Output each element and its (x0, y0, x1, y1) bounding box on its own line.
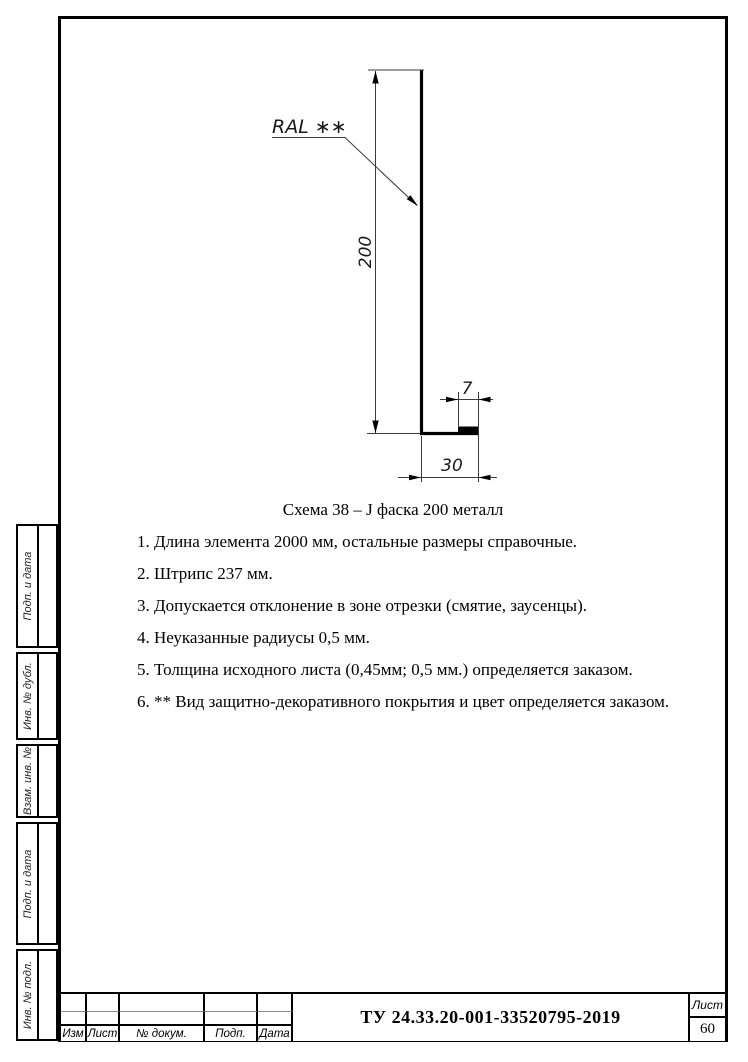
notes-list: 1. Длина элемента 2000 мм, остальные раз… (137, 533, 712, 725)
column-header-podp: Подп. (205, 1026, 258, 1041)
note-3: 3. Допускается отклонение в зоне отрезки… (137, 597, 712, 615)
stamp-label: Инв. № дубл. (22, 662, 34, 730)
stamp-label-cell: Подп. и дата (18, 824, 39, 943)
stamp-blank-cell (39, 824, 56, 943)
note-2: 2. Штрипс 237 мм. (137, 565, 712, 583)
revision-cell (120, 994, 205, 1012)
leader-line (272, 138, 417, 206)
spec-sheet-page: RAL ∗∗ 200 7 30 Схема 38 – J фаска 200 м… (0, 0, 748, 1062)
revision-cell (87, 1012, 120, 1026)
note-6: 6. ** Вид защитно-декоративного покрытия… (137, 693, 712, 711)
column-header-list: Лист (87, 1026, 120, 1041)
figure-caption: Схема 38 – J фаска 200 металл (58, 500, 728, 520)
note-1: 1. Длина элемента 2000 мм, остальные раз… (137, 533, 712, 551)
stamp-label-cell: Инв. № подл. (18, 951, 39, 1039)
dim-height-label: 200 (356, 236, 376, 268)
stamp-label-cell: Подп. и дата (18, 526, 39, 646)
column-header-data: Дата (258, 1026, 293, 1041)
title-block: Изм Лист № докум. Подп. Дата ТУ 24.33.20… (61, 992, 725, 1041)
document-number: ТУ 24.33.20-001-33520795-2019 (293, 994, 688, 1041)
column-header-dokum: № докум. (120, 1026, 205, 1041)
stamp-label-cell: Инв. № дубл. (18, 654, 39, 738)
revision-cell (258, 1012, 293, 1026)
stamp-box-podp-data-2: Подп. и дата (16, 822, 58, 945)
revision-cell (205, 994, 258, 1012)
revision-table: Изм Лист № докум. Подп. Дата (61, 994, 293, 1041)
stamp-label-cell: Взам. инв. № (18, 746, 39, 816)
sheet-cell: Лист 60 (688, 994, 725, 1041)
sheet-label: Лист (690, 994, 725, 1018)
stamp-blank-cell (39, 526, 56, 646)
revision-cell (205, 1012, 258, 1026)
coating-label: RAL ∗∗ (272, 116, 347, 138)
stamp-box-inv-podl: Инв. № подл. (16, 949, 58, 1041)
stamp-label: Инв. № подл. (22, 961, 34, 1029)
column-header-izm: Изм (61, 1026, 87, 1041)
stamp-box-vzam-inv: Взам. инв. № (16, 744, 58, 818)
revision-cell (87, 994, 120, 1012)
dim-hem-label: 7 (462, 379, 473, 399)
stamp-box-inv-dubl: Инв. № дубл. (16, 652, 58, 740)
revision-cell (61, 1012, 87, 1026)
stamp-label: Подп. и дата (22, 552, 34, 621)
note-4: 4. Неуказанные радиусы 0,5 мм. (137, 629, 712, 647)
revision-cell (120, 1012, 205, 1026)
revision-cell (61, 994, 87, 1012)
revision-cell (258, 994, 293, 1012)
stamp-label: Взам. инв. № (22, 747, 34, 815)
stamp-blank-cell (39, 654, 56, 738)
sheet-number: 60 (690, 1018, 725, 1041)
profile-schematic: RAL ∗∗ 200 7 30 (240, 50, 520, 500)
note-5: 5. Толщина исходного листа (0,45мм; 0,5 … (137, 661, 712, 679)
profile-hem (458, 427, 478, 433)
stamp-label: Подп. и дата (22, 849, 34, 918)
dim-base-label: 30 (441, 456, 463, 476)
stamp-blank-cell (39, 746, 56, 816)
dimension-arrows (372, 71, 490, 480)
stamp-box-podp-data-1: Подп. и дата (16, 524, 58, 648)
stamp-blank-cell (39, 951, 56, 1039)
